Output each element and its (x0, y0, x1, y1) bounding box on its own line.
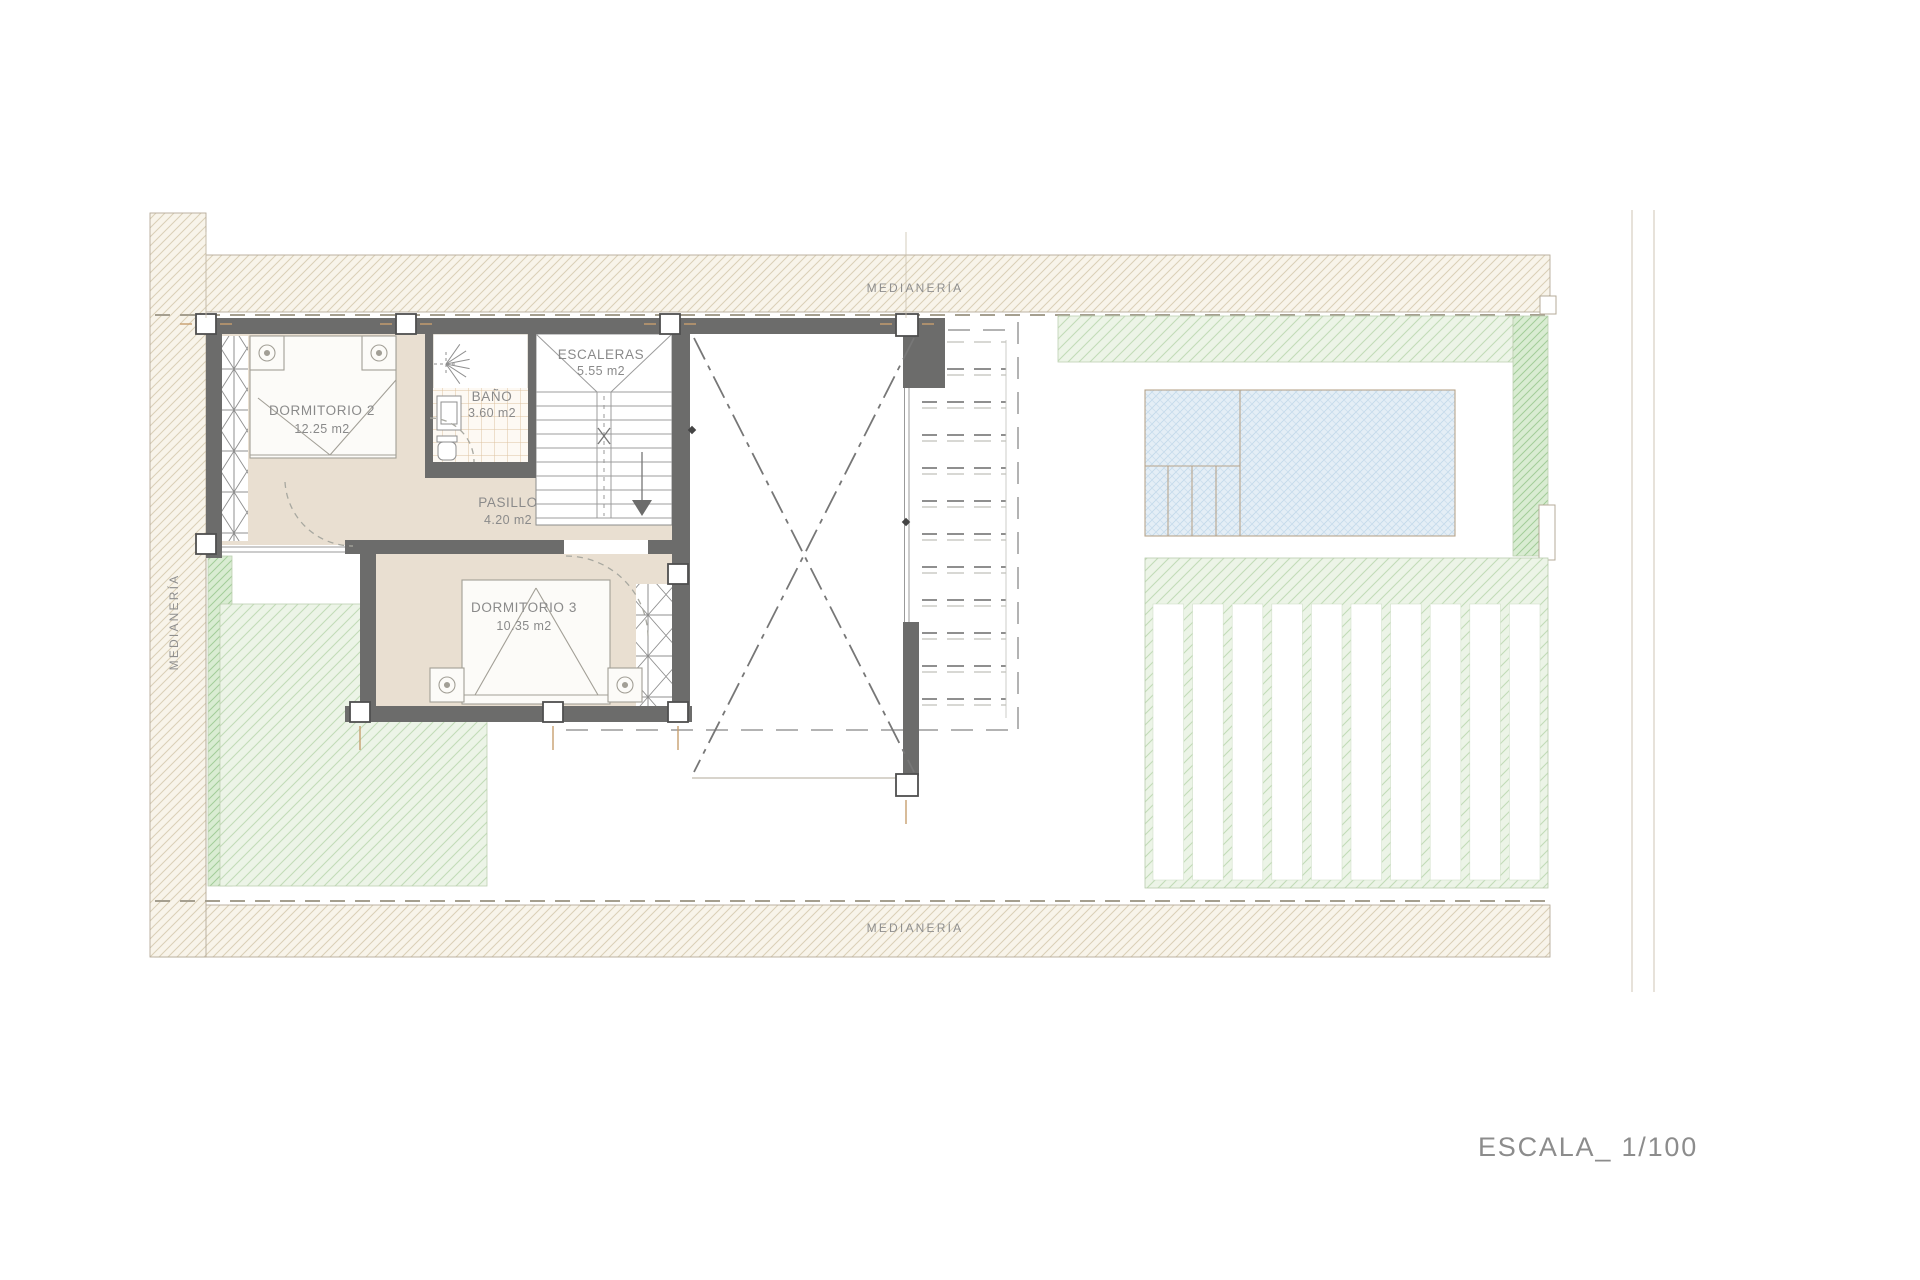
wall-dorm2-bath (425, 334, 433, 470)
page-boundary-lines (1632, 210, 1654, 992)
label-pasillo: PASILLO (478, 495, 537, 510)
bed-dormitorio2 (250, 336, 396, 458)
label-bano: BAÑO (472, 389, 513, 404)
label-escaleras: ESCALERAS (558, 347, 644, 362)
wall-left-dormitorio2 (206, 318, 222, 558)
wall-dorm3-bottom (345, 706, 692, 722)
louver-rows (922, 340, 1006, 716)
swimming-pool (1145, 390, 1455, 536)
wardrobe-dormitorio2 (222, 336, 248, 541)
wall-top (196, 318, 920, 334)
label-dormitorio2: DORMITORIO 2 (269, 403, 375, 418)
void-cross-marks (694, 338, 914, 772)
wall-dorm3-top (345, 540, 564, 554)
scale-label: ESCALA_ 1/100 (1478, 1132, 1698, 1162)
wall-right-lower (903, 622, 919, 776)
floor-plan-page: DORMITORIO 2 12.25 m2 BAÑO 3.60 m2 ESCAL… (0, 0, 1920, 1280)
floor-plan-drawing: DORMITORIO 2 12.25 m2 BAÑO 3.60 m2 ESCAL… (0, 0, 1920, 1280)
party-wall-top-strip (155, 255, 1550, 312)
wall-stairs-void (672, 318, 690, 722)
garden-strip-top (1058, 316, 1513, 362)
bed-dormitorio3 (430, 580, 642, 704)
stairs (536, 334, 672, 525)
wall-dorm3-left (360, 554, 376, 706)
area-dormitorio2: 12.25 m2 (294, 422, 349, 436)
pergola-deck (1145, 558, 1548, 888)
area-pasillo: 4.20 m2 (484, 513, 532, 527)
toilet-icon (437, 436, 457, 442)
party-wall-top-label: MEDIANERÍA (867, 280, 964, 295)
party-wall-left-label: MEDIANERÍA (166, 574, 181, 671)
party-wall-bottom-strip (155, 905, 1550, 957)
wall-bath-bottom (425, 462, 536, 478)
area-escaleras: 5.55 m2 (577, 364, 625, 378)
label-dormitorio3: DORMITORIO 3 (471, 600, 577, 615)
wall-node-diamonds (688, 426, 910, 526)
party-wall-bottom-label: MEDIANERÍA (867, 920, 964, 935)
wall-bath-stairs (528, 334, 536, 478)
area-bano: 3.60 m2 (468, 406, 516, 420)
area-dormitorio3: 10.35 m2 (496, 619, 551, 633)
